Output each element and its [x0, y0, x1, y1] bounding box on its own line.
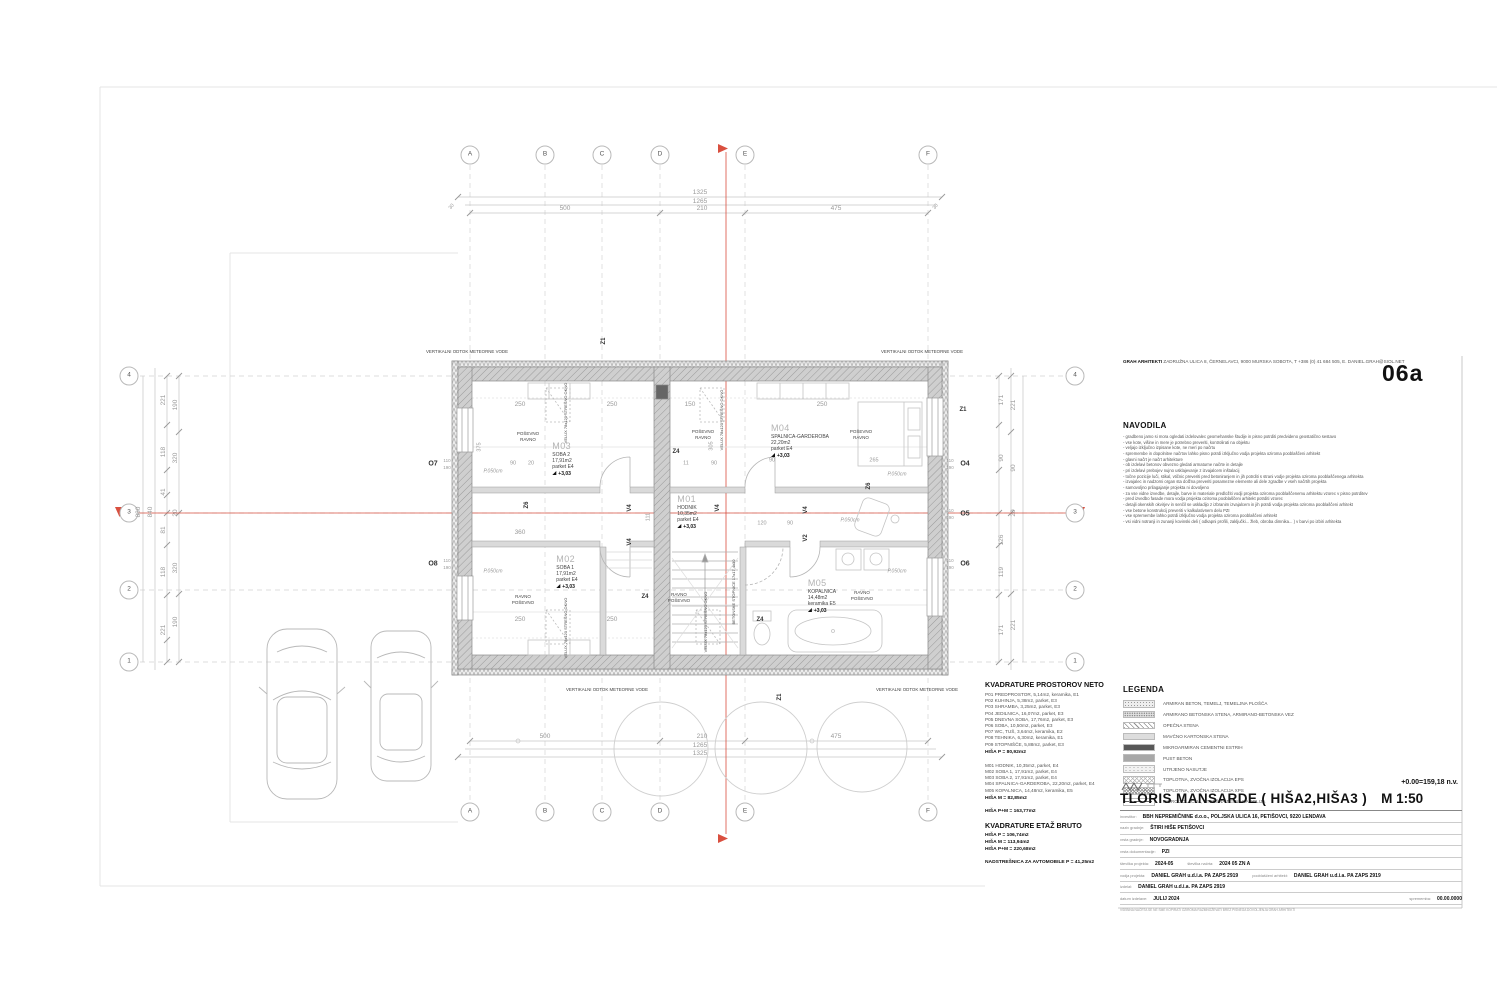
grid-bubble: F — [919, 803, 938, 822]
titleblock-row: vodja projekta:DANIEL GRAH u.d.i.a. PA Z… — [1120, 870, 1462, 882]
legend-label: OPEČNA STENA — [1163, 723, 1199, 728]
plan-annotation: 360 — [515, 530, 526, 537]
plan-annotation: 190 — [946, 466, 954, 471]
plan-annotation: RAVNO — [515, 595, 531, 600]
plan-annotation: V2 — [803, 534, 809, 541]
plan-annotation: P.050cm — [887, 570, 906, 575]
drawing-title: TLORIS MANSARDE ( HIŠA2,HIŠA3 ) — [1120, 791, 1367, 806]
party-wall — [654, 367, 670, 669]
car — [364, 631, 438, 781]
plan-annotation: 265 — [869, 458, 878, 464]
plan-annotation: RAVNO — [853, 436, 869, 441]
text-line: HIŠA P+M = 220,68m2 — [985, 847, 1135, 854]
legend-swatch — [1123, 711, 1155, 719]
plan-annotation: 375 — [477, 442, 483, 451]
plan-annotation: Z6 — [866, 482, 872, 489]
grid-lines — [140, 165, 1066, 804]
legend-label: PUST BETON — [1163, 756, 1192, 761]
spot-elevation-icon — [771, 453, 775, 457]
grid-bubble: 4 — [120, 367, 139, 386]
plan-annotation: 305 — [709, 441, 715, 450]
plan-annotation: 250 — [515, 617, 526, 624]
legend-swatch — [1123, 765, 1155, 773]
plan-annotation: Z4 — [756, 617, 763, 623]
grid-bubble: A — [461, 803, 480, 822]
plan-annotation: 1265 — [693, 743, 707, 750]
plan-annotation: 500 — [560, 206, 571, 213]
plan-annotation: 11 — [683, 461, 689, 467]
grid-bubble: D — [651, 146, 670, 165]
room-label-m05: M05KOPALNICA14,48m2keramika E5+3,03 — [808, 578, 836, 614]
grid-bubble: 2 — [1066, 581, 1085, 600]
plan-annotation: 171 — [999, 395, 1006, 406]
grid-bubble: E — [736, 146, 755, 165]
plan-annotation: 320 — [173, 563, 180, 574]
plan-annotation: 120 — [757, 521, 766, 527]
grid-bubble: E — [736, 803, 755, 822]
plan-annotation: P.050cm — [840, 519, 859, 524]
legend-swatch — [1123, 700, 1155, 708]
areas-panel: KVADRATURE PROSTOROV NETO P01 PREDPROSTO… — [985, 680, 1135, 867]
plan-annotation: 250 — [515, 402, 526, 409]
titleblock-row: vrsta dokumentacije:PZI — [1120, 846, 1462, 858]
plan-annotation: RAVNO — [695, 436, 711, 441]
plan-annotation: 90 — [1011, 464, 1018, 471]
grid-bubble: 1 — [1066, 653, 1085, 672]
elevation-datum: +0.00=159,18 n.v. — [1120, 779, 1462, 786]
plan-annotation: POŠEVNO — [850, 430, 872, 435]
plan-annotation: 221 — [161, 395, 168, 406]
grid-bubble: A — [461, 146, 480, 165]
legend-title: LEGENDA — [1123, 685, 1294, 694]
plan-annotation: 475 — [831, 206, 842, 213]
closet — [528, 383, 590, 655]
cars — [259, 629, 438, 799]
legend-item: MAVČNO KARTONSKA STENA — [1123, 733, 1294, 741]
legend-item: PUST BETON — [1123, 754, 1294, 762]
plan-annotation: V4 — [803, 506, 809, 513]
plan-annotation: 110 — [946, 459, 953, 464]
area-total-m: HIŠA M = 82,85m2 — [985, 796, 1135, 803]
plan-annotation: P.050cm — [887, 473, 906, 478]
grid-bubble: 2 — [120, 581, 139, 600]
legend-label: UTRJENO NASUTJE — [1163, 767, 1207, 772]
plan-annotation: 210 — [697, 206, 708, 213]
legend-label: ARMIRAN BETON, TEMELJ, TEMELJNA PLOŠČA — [1163, 701, 1267, 706]
plan-annotation: O8 — [428, 561, 437, 568]
drawing-sheet: ABCDEFABCDEF4321432113251265500210475303… — [0, 0, 1500, 991]
notes-lines: - gradbeno jamo si mora ogledati izdelov… — [1123, 434, 1468, 525]
sheet-header: GRAH ARHITEKTI ZADRUŽNA ULICA 8, ČERNELA… — [1123, 359, 1405, 364]
legend-swatch — [1123, 754, 1155, 762]
plan-annotation: VELUX 78x120 STREŠNO OKNO — [564, 598, 568, 659]
plan-annotation: 20 — [528, 461, 534, 467]
legend-item: MIKROARMIRAN CEMENTNI ESTRIH — [1123, 744, 1294, 752]
text-line: M05 KOPALNICA, 14,48m2, keramika, E5 — [985, 788, 1135, 794]
furniture — [528, 383, 922, 655]
chimney — [656, 385, 668, 399]
room-label-m02: M02SOBA 117,91m2parket E4+3,03 — [556, 554, 577, 590]
plan-annotation: VERTIKALNI ODTOK METEORNE VODE — [881, 350, 963, 354]
plan-annotation: 190 — [443, 566, 451, 571]
bathtub — [788, 610, 882, 652]
firm-address: ZADRUŽNA ULICA 8, ČERNELAVCI, 9000 MURSK… — [1162, 359, 1404, 364]
legend-item: UTRJENO NASUTJE — [1123, 765, 1294, 773]
titleblock-row: vrsta gradnje:NOVOGRADNJA — [1120, 835, 1462, 847]
titleblock: +0.00=159,18 n.v. TLORIS MANSARDE ( HIŠA… — [1120, 779, 1462, 912]
plan-annotation: 210 — [697, 734, 708, 741]
plan-annotation: 221 — [1011, 400, 1018, 411]
room-label-m01: M01HODNIK10,35m2parket E4+3,03 — [677, 494, 698, 530]
plan-annotation: 320 — [173, 453, 180, 464]
grid-bubble: C — [593, 803, 612, 822]
plan-annotation: POŠEVNO — [668, 599, 690, 604]
legend-item: ARMIRANO BETONSKA STENA, ARMIRANO-BETONS… — [1123, 711, 1294, 719]
text-line: - vsi vidni notranji in zunanji kovinski… — [1123, 519, 1468, 525]
plan-annotation: 475 — [831, 734, 842, 741]
plan-annotation: P.050cm — [483, 470, 502, 475]
plan-annotation: O6 — [960, 561, 969, 568]
area-total-p: HIŠA P = 80,92m2 — [985, 750, 1135, 757]
grid-bubble: B — [536, 146, 555, 165]
plan-annotation: 90 — [999, 454, 1006, 461]
plan-annotation: RAVNO — [854, 591, 870, 596]
titleblock-row: naziv gradnje:ŠTIRI HIŠE PETIŠOVCI — [1120, 823, 1462, 835]
plan-annotation: 500 — [540, 734, 551, 741]
titleblock-row: številka projekta:2024-05številka načrta… — [1120, 858, 1462, 870]
plan-annotation: RAVNO — [671, 593, 687, 598]
firm-name: GRAH ARHITEKTI — [1123, 359, 1162, 364]
interior-walls — [472, 487, 928, 655]
grid-bubble: B — [536, 803, 555, 822]
plan-annotation: POŠEVNO — [512, 601, 534, 606]
plan-annotation: VERTIKALNI ODTOK METEORNE VODE — [876, 688, 958, 692]
scale-meander-icon — [1120, 779, 1164, 793]
plan-annotation: Z4 — [672, 449, 679, 455]
exterior-walls — [452, 361, 948, 675]
titleblock-row: investitor:BBH NEPREMIČNINE d.o.o., POLJ… — [1120, 811, 1462, 823]
plan-annotation: VERTIKALNI ODTOK METEORNE VODE — [426, 350, 508, 354]
grid-bubble: 1 — [120, 653, 139, 672]
legend-item: ARMIRAN BETON, TEMELJ, TEMELJNA PLOŠČA — [1123, 700, 1294, 708]
plan-annotation: 171 — [999, 625, 1006, 636]
room-label-m03: M03SOBA 217,91m2parket E4+3,03 — [552, 441, 573, 477]
plan-annotation: 190 — [173, 400, 180, 411]
plan-annotation: Z1 — [601, 337, 607, 344]
plan-annotation: POŠEVNO — [517, 432, 539, 437]
plan-annotation: 221 — [1011, 620, 1018, 631]
plan-annotation: 118 — [161, 567, 168, 577]
plan-annotation: V4 — [627, 504, 633, 511]
legend-label: MIKROARMIRAN CEMENTNI ESTRIH — [1163, 745, 1243, 750]
room-label-m04: M04SPALNICA-GARDEROBA22,20m2parket E4+3,… — [771, 423, 829, 459]
titleblock-row: izdelal:DANIEL GRAH u.d.i.a. PA ZAPS 291… — [1120, 882, 1462, 894]
grid-bubble: D — [651, 803, 670, 822]
washbasins — [836, 549, 889, 570]
plan-annotation: 90 — [711, 461, 717, 467]
plan-annotation: VELUX 78x120 STREŠNO OKNO — [564, 383, 568, 444]
wardrobe — [757, 383, 849, 399]
plan-annotation: 250 — [607, 402, 618, 409]
plan-annotation: 20 — [173, 509, 180, 516]
plan-annotation: 190 — [946, 516, 954, 521]
plan-annotation: O5 — [960, 511, 969, 518]
titleblock-footer: VSEBINA NAČRTA SE NE SME KOPIRATI OZIROM… — [1120, 908, 1462, 912]
plan-annotation: P.050cm — [483, 570, 502, 575]
side-table — [891, 515, 899, 523]
grid-bubble: 3 — [1066, 504, 1085, 523]
plan-annotation: 1325 — [693, 751, 707, 758]
plan-annotation: 90 — [769, 458, 775, 464]
plan-annotation: 110 — [443, 459, 450, 464]
plan-annotation: 190 — [443, 466, 451, 471]
plan-annotation: V4 — [627, 538, 633, 545]
plan-annotation: 90 — [787, 521, 793, 527]
plan-annotation: Z1 — [777, 693, 783, 700]
grid-bubble: 4 — [1066, 367, 1085, 386]
grid-bubble: C — [593, 146, 612, 165]
plan-annotation: 880 — [136, 507, 143, 518]
legend-item: OPEČNA STENA — [1123, 722, 1294, 730]
spot-elevation-icon — [808, 608, 812, 612]
drawing-scale: M 1:50 — [1381, 791, 1423, 806]
plan-annotation: O4 — [960, 461, 969, 468]
legend-label: MAVČNO KARTONSKA STENA — [1163, 734, 1229, 739]
plan-annotation: 250 — [607, 617, 618, 624]
legend-swatch — [1123, 744, 1155, 752]
plan-annotation: 110 — [443, 559, 450, 564]
spot-elevation-icon — [677, 524, 681, 528]
titleblock-row: datum izdelave:JULIJ 2024sprememba:00.00… — [1120, 893, 1462, 905]
spot-elevation-icon — [556, 584, 560, 588]
plan-annotation: Z4 — [641, 594, 648, 600]
plan-annotation: 126 — [999, 535, 1006, 546]
text-line: P09 STOPNIŠČE, 5,88m2, parket, E3 — [985, 742, 1135, 748]
plan-annotation: 111 — [646, 513, 652, 521]
plan-annotation: 190 — [173, 617, 180, 628]
firm-line: GRAH ARHITEKTI ZADRUŽNA ULICA 8, ČERNELA… — [1123, 359, 1405, 364]
titleblock-title-row: TLORIS MANSARDE ( HIŠA2,HIŠA3 ) M 1:50 — [1120, 788, 1462, 811]
plan-annotation: 41 — [161, 488, 168, 495]
plan-annotation: Z6 — [524, 501, 530, 508]
notes-title: NAVODILA — [1123, 421, 1468, 430]
plan-annotation: 1325 — [693, 190, 707, 197]
plan-annotation: 119 — [999, 567, 1006, 577]
spot-elevation-icon — [552, 471, 556, 475]
plan-annotation: 840 — [148, 507, 155, 518]
car — [259, 629, 345, 799]
plan-annotation: 81 — [161, 526, 168, 533]
plan-annotation: 118 — [161, 447, 168, 457]
legend-label: ARMIRANO BETONSKA STENA, ARMIRANO-BETONS… — [1163, 712, 1294, 717]
plan-annotation: RAVNO — [520, 438, 536, 443]
areas-neto-title: KVADRATURE PROSTOROV NETO — [985, 680, 1135, 689]
plan-annotation: VELUX 78x120 STREŠNO OKNO — [720, 390, 724, 451]
plan-annotation: 190 — [946, 566, 954, 571]
notes-panel: NAVODILA - gradbeno jamo si mora ogledat… — [1123, 421, 1468, 525]
grid-bubble: F — [919, 146, 938, 165]
plan-annotation: POŠEVNO — [692, 430, 714, 435]
plan-annotation: Z1 — [959, 407, 966, 413]
carport-area: NADSTREŠNICA ZA AVTOMOBILE P = 41,25m2 — [985, 860, 1135, 867]
plan-annotation: 250 — [817, 402, 828, 409]
plan-annotation: O7 — [428, 461, 437, 468]
legend-swatch — [1123, 733, 1155, 741]
legend-swatch — [1123, 722, 1155, 730]
plan-annotation: 110 — [946, 559, 953, 564]
sheet-code: 06a — [1382, 360, 1423, 387]
plan-annotation: BETONSKE STOPNICE 17x17,4x30 — [732, 560, 736, 625]
plan-annotation: 90 — [510, 461, 516, 467]
plan-annotation: VERTIKALNI ODTOK METEORNE VODE — [566, 688, 648, 692]
plan-annotation: 20 — [1011, 509, 1018, 516]
areas-bruto-title: KVADRATURE ETAŽ BRUTO — [985, 821, 1135, 830]
plan-annotation: 110 — [946, 509, 953, 514]
plan-annotation: 221 — [161, 625, 168, 636]
plan-annotation: VELUX 78x120 STREŠNO OKNO — [704, 592, 708, 653]
plan-annotation: V4 — [715, 504, 721, 511]
area-total-pm: HIŠA P+M = 163,77m2 — [985, 809, 1135, 816]
plan-annotation: 150 — [685, 402, 696, 409]
plan-annotation: POŠEVNO — [851, 597, 873, 602]
